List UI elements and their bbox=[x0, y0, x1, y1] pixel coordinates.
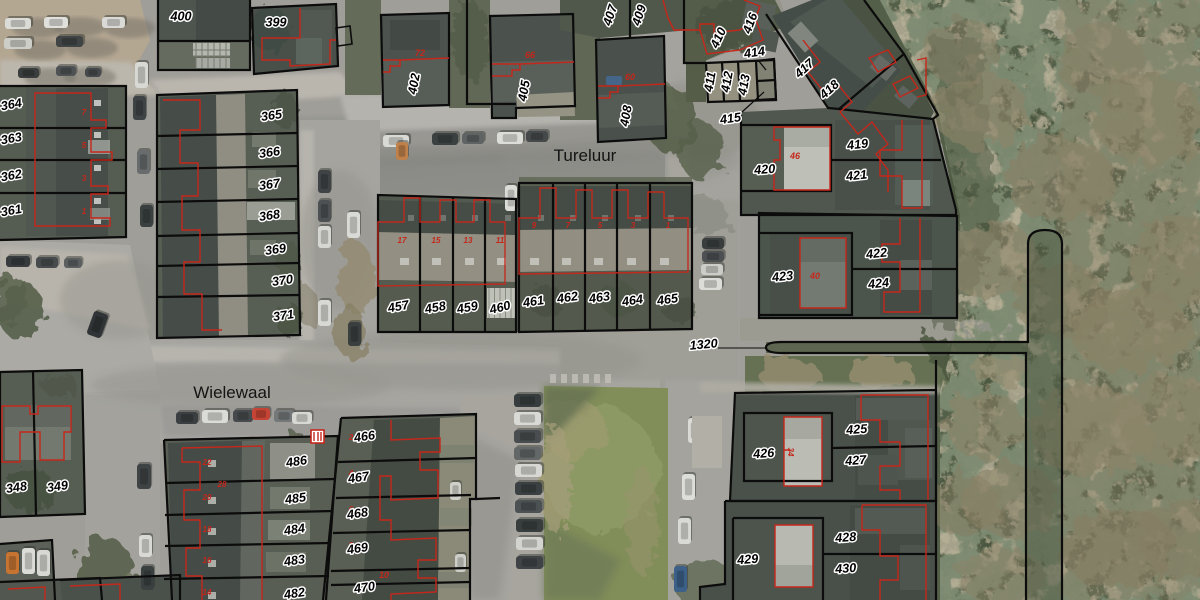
svg-text:430: 430 bbox=[834, 561, 857, 577]
svg-text:22: 22 bbox=[202, 458, 212, 467]
svg-text:426: 426 bbox=[752, 446, 776, 462]
svg-text:16: 16 bbox=[203, 556, 212, 565]
svg-text:421: 421 bbox=[844, 167, 867, 183]
svg-text:20: 20 bbox=[202, 493, 212, 502]
svg-text:427: 427 bbox=[844, 453, 868, 469]
svg-text:28: 28 bbox=[217, 480, 227, 489]
svg-text:371: 371 bbox=[272, 307, 295, 324]
svg-text:5: 5 bbox=[82, 141, 87, 150]
svg-text:40: 40 bbox=[809, 271, 820, 281]
svg-text:13: 13 bbox=[464, 236, 473, 245]
svg-text:Wielewaal: Wielewaal bbox=[193, 383, 270, 402]
svg-text:14: 14 bbox=[203, 588, 212, 597]
svg-text:423: 423 bbox=[770, 268, 793, 284]
svg-text:1: 1 bbox=[82, 207, 87, 216]
svg-text:3: 3 bbox=[631, 221, 636, 230]
svg-text:422: 422 bbox=[864, 245, 887, 261]
svg-text:3: 3 bbox=[82, 174, 87, 183]
svg-text:18: 18 bbox=[203, 525, 212, 534]
svg-text:348: 348 bbox=[5, 479, 28, 496]
svg-text:34: 34 bbox=[786, 448, 795, 457]
svg-text:424: 424 bbox=[866, 275, 889, 291]
svg-text:1: 1 bbox=[666, 221, 671, 230]
svg-text:17: 17 bbox=[398, 236, 407, 245]
svg-text:428: 428 bbox=[834, 530, 857, 546]
svg-text:10: 10 bbox=[379, 570, 389, 580]
svg-text:46: 46 bbox=[789, 151, 801, 161]
svg-text:7: 7 bbox=[566, 221, 571, 230]
svg-text:9: 9 bbox=[532, 221, 537, 230]
svg-text:Tureluur: Tureluur bbox=[554, 146, 617, 165]
svg-text:420: 420 bbox=[753, 162, 776, 178]
svg-text:429: 429 bbox=[736, 552, 759, 568]
svg-text:7: 7 bbox=[82, 108, 87, 117]
svg-text:15: 15 bbox=[432, 236, 441, 245]
svg-text:370: 370 bbox=[271, 272, 294, 289]
svg-text:399: 399 bbox=[265, 16, 286, 30]
svg-text:1320: 1320 bbox=[689, 336, 718, 352]
svg-text:60: 60 bbox=[625, 72, 635, 82]
svg-text:369: 369 bbox=[264, 241, 287, 258]
svg-text:72: 72 bbox=[415, 48, 425, 58]
svg-text:482: 482 bbox=[282, 585, 306, 600]
svg-text:419: 419 bbox=[845, 136, 868, 152]
svg-text:66: 66 bbox=[525, 50, 536, 60]
svg-text:11: 11 bbox=[496, 236, 505, 245]
svg-text:368: 368 bbox=[258, 207, 281, 224]
svg-text:400: 400 bbox=[169, 10, 191, 24]
svg-text:349: 349 bbox=[46, 478, 69, 495]
svg-text:5: 5 bbox=[598, 221, 603, 230]
svg-text:425: 425 bbox=[845, 422, 869, 438]
